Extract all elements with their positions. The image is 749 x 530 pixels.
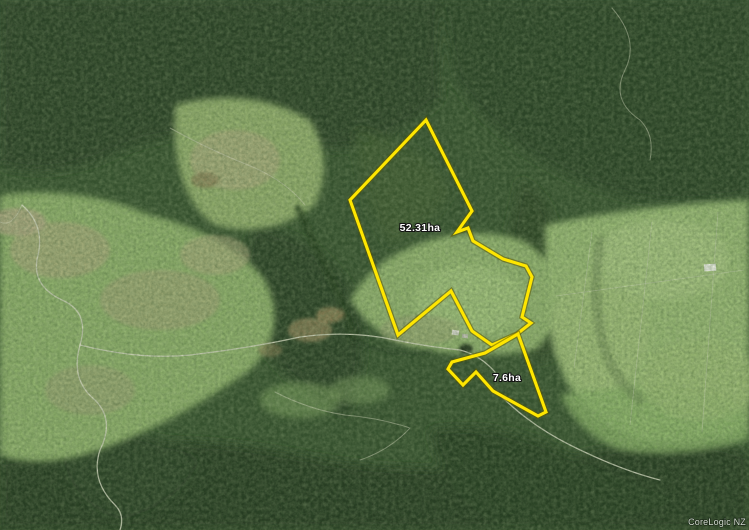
- corelogic-watermark: CoreLogic NZ: [688, 517, 746, 527]
- aerial-map: 52.31ha 7.6ha CoreLogic NZ: [0, 0, 749, 530]
- parcel-1-area-label: 52.31ha: [400, 222, 441, 234]
- parcel-2-area-label: 7.6ha: [493, 372, 521, 384]
- aerial-map-canvas: 52.31ha 7.6ha CoreLogic NZ: [0, 0, 749, 530]
